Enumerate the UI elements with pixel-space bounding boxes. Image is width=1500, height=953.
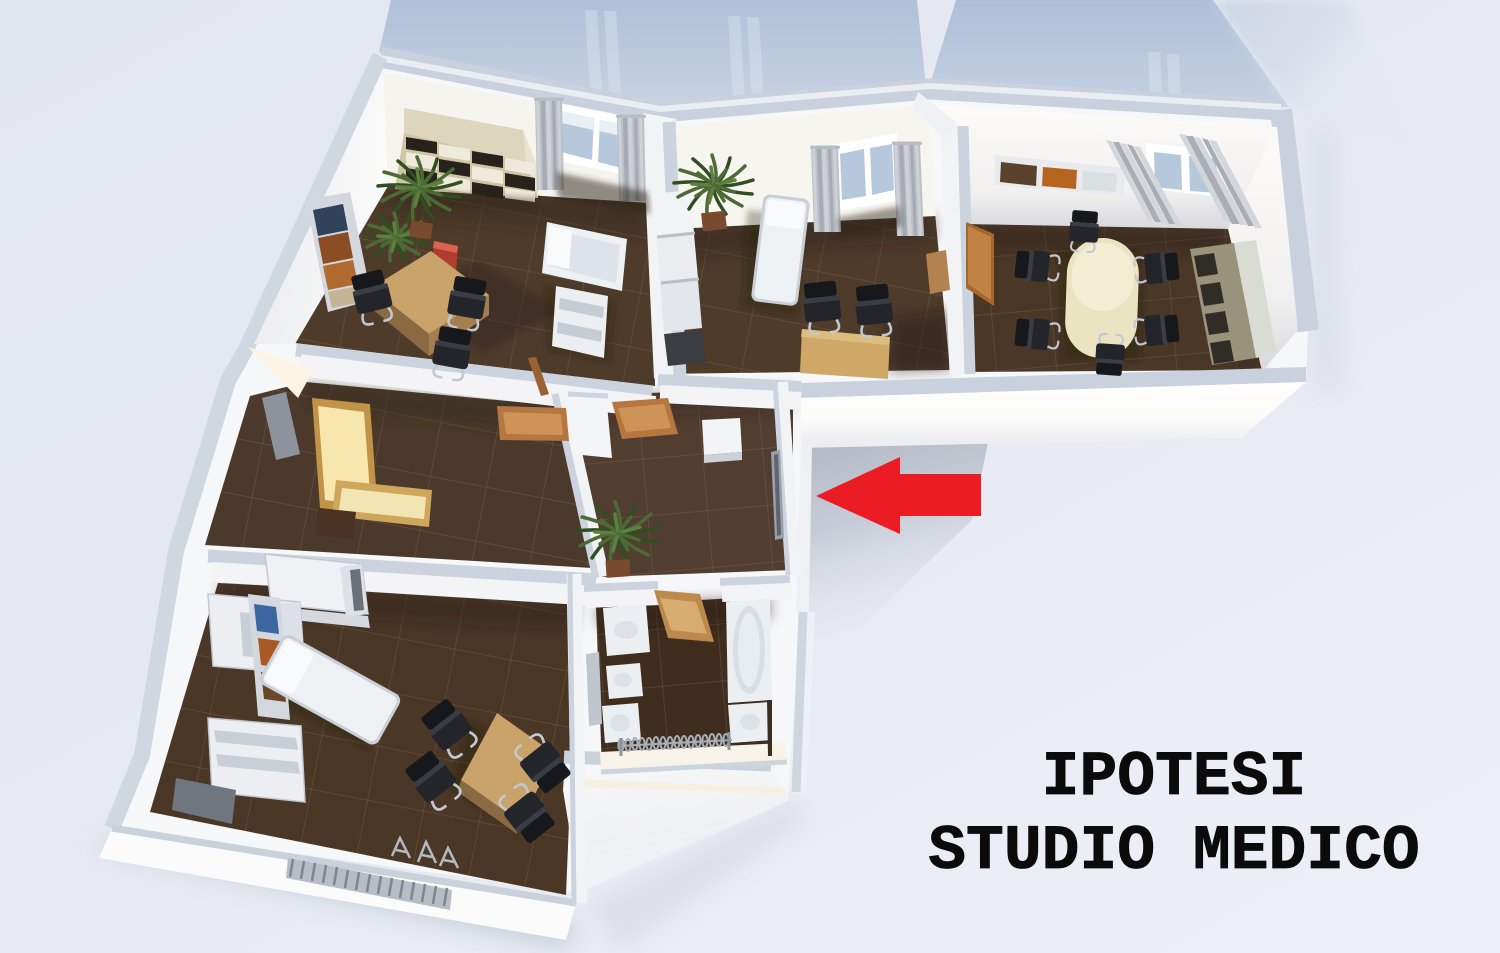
- svg-text:IPOTESI: IPOTESI: [1042, 742, 1307, 813]
- svg-text:STUDIO MEDICO: STUDIO MEDICO: [928, 816, 1419, 887]
